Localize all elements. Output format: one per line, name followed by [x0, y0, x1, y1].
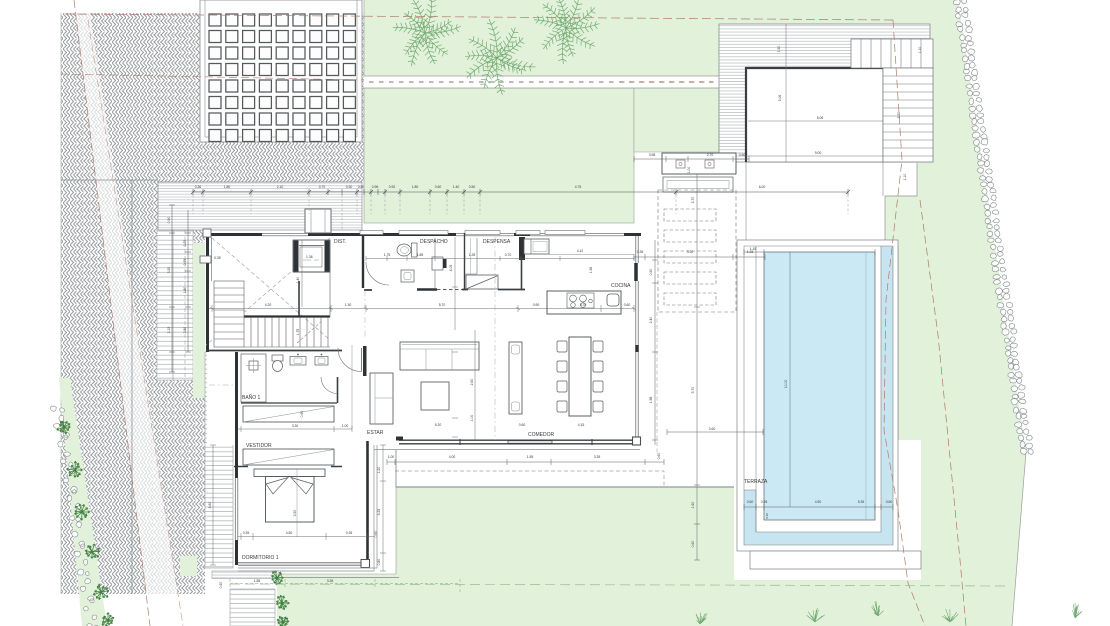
- svg-text:1.80: 1.80: [412, 185, 419, 189]
- svg-text:0.60: 0.60: [886, 500, 893, 504]
- svg-text:1.55: 1.55: [527, 455, 534, 459]
- svg-text:DESPACHO: DESPACHO: [420, 239, 448, 245]
- svg-text:1.36: 1.36: [589, 267, 593, 274]
- svg-text:0.35: 0.35: [183, 240, 187, 247]
- svg-text:BAÑO 1: BAÑO 1: [242, 394, 261, 401]
- svg-text:1.40: 1.40: [296, 277, 300, 284]
- svg-text:0.35: 0.35: [214, 256, 221, 260]
- svg-text:1.80: 1.80: [224, 185, 231, 189]
- svg-text:0.90: 0.90: [533, 303, 540, 307]
- svg-text:6.00: 6.00: [759, 185, 766, 189]
- svg-text:0.50: 0.50: [739, 153, 746, 157]
- svg-text:1.10: 1.10: [918, 47, 922, 54]
- svg-text:COCINA: COCINA: [611, 283, 631, 289]
- svg-text:2.10: 2.10: [277, 185, 284, 189]
- svg-text:4.20: 4.20: [265, 303, 272, 307]
- svg-text:4.75: 4.75: [575, 185, 582, 189]
- svg-text:1.85: 1.85: [417, 253, 424, 257]
- svg-text:2.60: 2.60: [470, 379, 474, 386]
- svg-text:3.35: 3.35: [327, 579, 334, 583]
- svg-text:0.60: 0.60: [624, 303, 631, 307]
- svg-text:0.70: 0.70: [319, 185, 326, 189]
- svg-text:1.50: 1.50: [777, 46, 781, 53]
- svg-text:0.60: 0.60: [374, 531, 378, 538]
- svg-text:0.96: 0.96: [372, 185, 379, 189]
- svg-text:1.75: 1.75: [296, 329, 300, 336]
- svg-text:0.60: 0.60: [657, 453, 661, 460]
- svg-text:0.50: 0.50: [649, 269, 653, 276]
- svg-text:4.50: 4.50: [815, 500, 822, 504]
- svg-text:0.60: 0.60: [435, 185, 442, 189]
- svg-text:1.00: 1.00: [388, 455, 395, 459]
- svg-text:2.15: 2.15: [167, 327, 171, 334]
- svg-text:5.20: 5.20: [435, 423, 442, 427]
- svg-text:3.60: 3.60: [709, 427, 716, 431]
- svg-text:0.70: 0.70: [580, 303, 587, 307]
- svg-text:0.95: 0.95: [183, 259, 187, 266]
- svg-text:0.50: 0.50: [358, 185, 365, 189]
- svg-text:0.35: 0.35: [765, 513, 769, 519]
- svg-text:0.70: 0.70: [505, 253, 512, 257]
- svg-text:0.35: 0.35: [243, 531, 250, 535]
- svg-text:3.06: 3.06: [778, 95, 782, 102]
- svg-text:3.70: 3.70: [691, 197, 695, 204]
- svg-text:5.70: 5.70: [439, 303, 446, 307]
- svg-text:3.25: 3.25: [377, 509, 381, 516]
- svg-text:9.00: 9.00: [815, 151, 822, 155]
- svg-text:COMEDOR: COMEDOR: [528, 432, 555, 438]
- svg-text:1.40: 1.40: [453, 185, 460, 189]
- svg-text:0.80: 0.80: [377, 559, 381, 566]
- svg-text:1.15: 1.15: [750, 247, 757, 251]
- svg-text:2.40: 2.40: [649, 317, 653, 324]
- svg-text:1.20: 1.20: [377, 467, 381, 474]
- svg-text:VESTIDOR: VESTIDOR: [246, 443, 272, 449]
- svg-text:1.80: 1.80: [183, 287, 187, 294]
- svg-text:3.35: 3.35: [594, 455, 601, 459]
- svg-text:0.36: 0.36: [195, 185, 202, 189]
- svg-text:0.35: 0.35: [761, 500, 768, 504]
- svg-text:DESPENSA: DESPENSA: [483, 239, 511, 245]
- svg-text:3.30: 3.30: [292, 424, 299, 428]
- svg-text:0.60: 0.60: [519, 423, 526, 427]
- svg-text:0.50: 0.50: [469, 185, 476, 189]
- svg-text:DIST.: DIST.: [334, 239, 346, 245]
- svg-text:5.35: 5.35: [858, 500, 865, 504]
- svg-text:5.06: 5.06: [817, 116, 824, 120]
- svg-text:1.60: 1.60: [691, 502, 695, 509]
- svg-text:3.98: 3.98: [649, 153, 656, 157]
- svg-text:1.85: 1.85: [254, 579, 261, 583]
- svg-text:0.60: 0.60: [691, 541, 695, 548]
- svg-text:4.15: 4.15: [578, 423, 585, 427]
- svg-text:1.00: 1.00: [687, 167, 691, 174]
- svg-text:1.28: 1.28: [469, 253, 476, 257]
- svg-text:2.70: 2.70: [707, 153, 714, 157]
- svg-text:DORMITORIO 1: DORMITORIO 1: [242, 555, 279, 561]
- svg-text:4.05: 4.05: [449, 265, 453, 272]
- svg-text:0.90: 0.90: [300, 411, 304, 418]
- svg-text:0.30: 0.30: [346, 185, 353, 189]
- svg-text:1.00: 1.00: [470, 415, 474, 422]
- svg-text:1.36: 1.36: [306, 255, 313, 259]
- svg-text:3.50: 3.50: [167, 267, 171, 274]
- svg-text:TERRAZA: TERRAZA: [744, 479, 768, 485]
- svg-text:ESTAR: ESTAR: [367, 430, 384, 436]
- svg-text:1.75: 1.75: [384, 253, 391, 257]
- svg-text:4.12: 4.12: [577, 249, 584, 253]
- svg-text:0.50: 0.50: [219, 582, 223, 589]
- svg-text:1.98: 1.98: [649, 397, 653, 404]
- svg-text:3.50: 3.50: [293, 510, 297, 517]
- svg-text:0.92: 0.92: [389, 185, 396, 189]
- svg-text:5.70: 5.70: [691, 387, 695, 394]
- svg-text:4.60: 4.60: [208, 502, 212, 509]
- svg-text:1.00: 1.00: [342, 424, 349, 428]
- svg-text:4.50: 4.50: [286, 531, 293, 535]
- svg-text:2.50: 2.50: [183, 327, 187, 334]
- svg-text:0.35: 0.35: [637, 250, 644, 254]
- svg-text:3.30: 3.30: [687, 250, 694, 254]
- svg-text:10.00: 10.00: [784, 380, 788, 389]
- svg-text:0.35: 0.35: [346, 531, 353, 535]
- svg-text:1.10: 1.10: [903, 174, 907, 181]
- svg-text:4.00: 4.00: [449, 455, 456, 459]
- svg-text:0.90: 0.90: [167, 217, 171, 224]
- svg-text:1.30: 1.30: [345, 303, 352, 307]
- svg-text:0.60: 0.60: [747, 500, 754, 504]
